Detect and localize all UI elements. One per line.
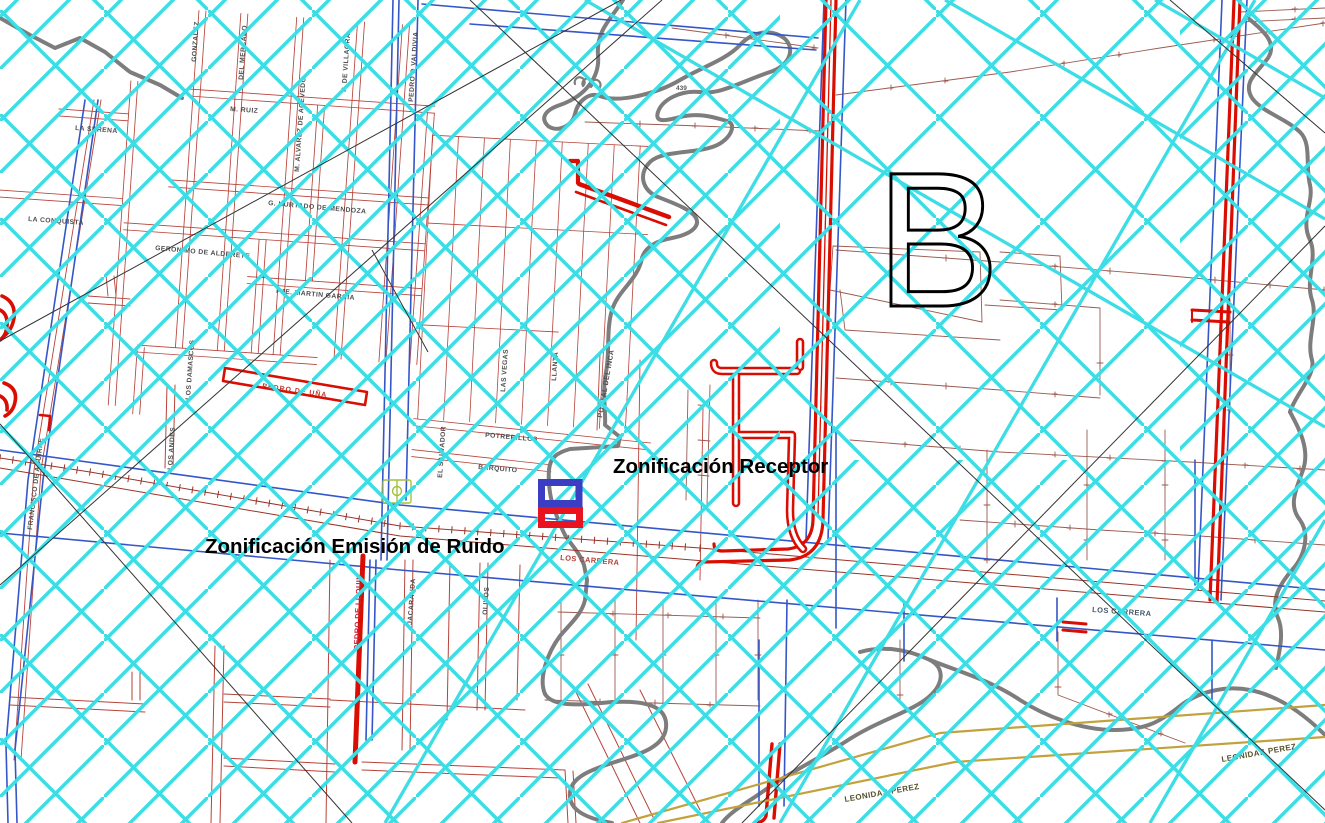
svg-text:Zonificación Receptor: Zonificación Receptor (613, 455, 828, 478)
svg-text:Zonificación Emisión de Ruido: Zonificación Emisión de Ruido (205, 535, 505, 558)
svg-text:B: B (876, 133, 1000, 347)
